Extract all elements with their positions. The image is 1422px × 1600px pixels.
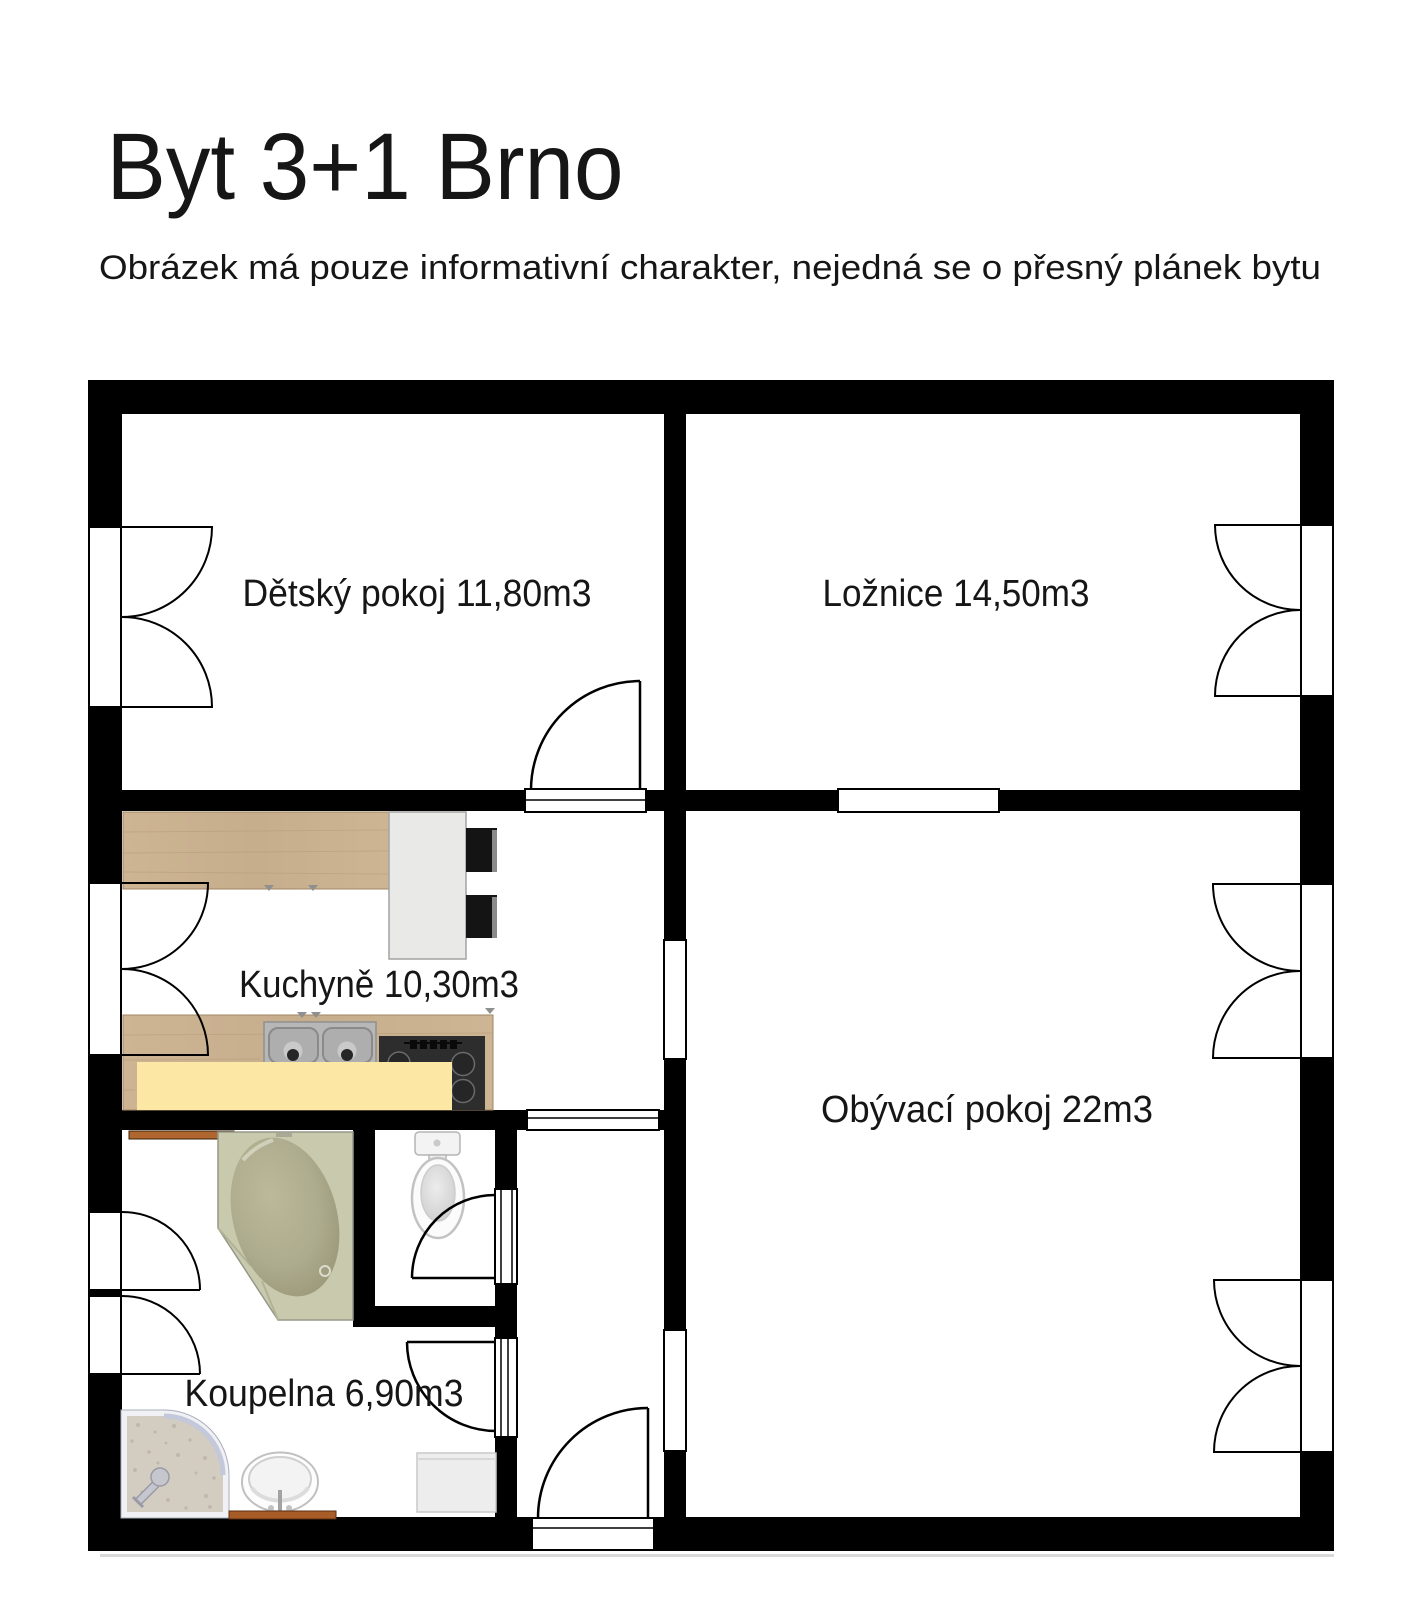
- svg-text:Kuchyně 10,30m3: Kuchyně 10,30m3: [239, 964, 519, 1006]
- svg-text:Koupelna 6,90m3: Koupelna 6,90m3: [185, 1373, 464, 1415]
- svg-text:Dětský pokoj 11,80m3: Dětský pokoj 11,80m3: [243, 573, 592, 615]
- svg-text:Ložnice 14,50m3: Ložnice 14,50m3: [823, 573, 1090, 615]
- svg-text:Byt 3+1 Brno: Byt 3+1 Brno: [107, 114, 624, 220]
- svg-text:Obrázek má pouze informativní: Obrázek má pouze informativní charakter,…: [99, 249, 1321, 287]
- svg-text:Obývací pokoj 22m3: Obývací pokoj 22m3: [821, 1089, 1153, 1131]
